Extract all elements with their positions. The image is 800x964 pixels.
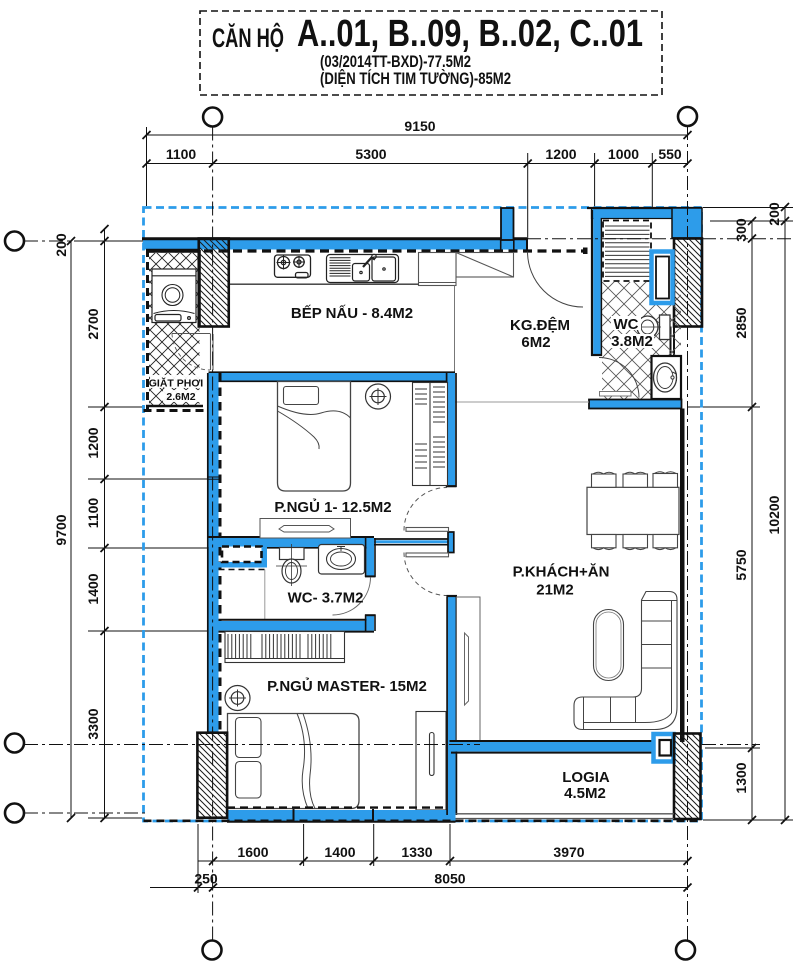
svg-text:550: 550	[658, 146, 682, 162]
svg-text:200: 200	[766, 202, 782, 226]
svg-text:300: 300	[733, 218, 749, 242]
svg-text:P.NGỦ 1- 12.5M2: P.NGỦ 1- 12.5M2	[274, 498, 391, 516]
svg-text:1330: 1330	[401, 844, 432, 860]
svg-text:1400: 1400	[85, 573, 101, 604]
svg-text:9150: 9150	[404, 118, 435, 134]
svg-text:1000: 1000	[608, 146, 639, 162]
svg-text:1100: 1100	[166, 146, 197, 162]
svg-text:LOGIA: LOGIA	[562, 769, 610, 786]
svg-text:(03/2014TT-BXD)-77.5M2: (03/2014TT-BXD)-77.5M2	[320, 53, 471, 71]
svg-text:KG.ĐỆM: KG.ĐỆM	[510, 316, 570, 334]
svg-text:6M2: 6M2	[521, 334, 550, 351]
svg-text:P.KHÁCH+ĂN: P.KHÁCH+ĂN	[513, 564, 610, 581]
svg-text:(DIỆN TÍCH TIM TƯỜNG)-85M2: (DIỆN TÍCH TIM TƯỜNG)-85M2	[320, 69, 511, 88]
svg-text:1100: 1100	[85, 498, 101, 529]
svg-text:200: 200	[53, 233, 69, 257]
svg-text:10200: 10200	[766, 495, 782, 534]
svg-text:1600: 1600	[237, 844, 268, 860]
svg-text:8050: 8050	[434, 871, 465, 887]
svg-text:2.6M2: 2.6M2	[166, 391, 195, 403]
svg-text:CĂN HỘ: CĂN HỘ	[212, 22, 284, 53]
svg-text:BẾP NẤU - 8.4M2: BẾP NẤU - 8.4M2	[291, 305, 413, 322]
svg-text:3970: 3970	[553, 844, 584, 860]
svg-text:P.NGỦ MASTER- 15M2: P.NGỦ MASTER- 15M2	[267, 677, 427, 695]
svg-text:5300: 5300	[355, 146, 386, 162]
svg-text:GIẶT PHƠI: GIẶT PHƠI	[149, 377, 204, 390]
svg-text:2850: 2850	[733, 307, 749, 338]
svg-text:3300: 3300	[85, 708, 101, 739]
svg-text:21M2: 21M2	[536, 582, 574, 599]
svg-text:1400: 1400	[324, 844, 355, 860]
svg-text:4.5M2: 4.5M2	[564, 785, 606, 802]
svg-text:WC: WC	[614, 316, 639, 333]
svg-text:1300: 1300	[733, 762, 749, 793]
svg-text:2700: 2700	[85, 308, 101, 339]
svg-text:9700: 9700	[53, 514, 69, 545]
svg-text:WC- 3.7M2: WC- 3.7M2	[288, 590, 364, 607]
svg-text:5750: 5750	[733, 549, 749, 580]
svg-text:1200: 1200	[85, 427, 101, 458]
svg-text:3.8M2: 3.8M2	[611, 333, 653, 350]
svg-text:A..01, B..09, B..02, C..01: A..01, B..09, B..02, C..01	[297, 13, 643, 55]
svg-text:250: 250	[194, 871, 218, 887]
svg-text:1200: 1200	[545, 146, 576, 162]
